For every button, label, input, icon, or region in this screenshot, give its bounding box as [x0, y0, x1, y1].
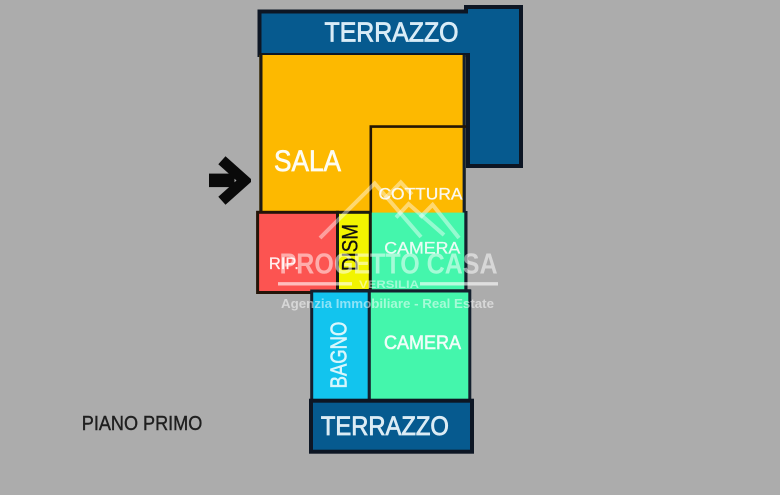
svg-text:VERSILIA: VERSILIA	[359, 279, 419, 291]
svg-text:TERRAZZO: TERRAZZO	[325, 16, 459, 47]
svg-text:TERRAZZO: TERRAZZO	[321, 411, 449, 441]
svg-text:CAMERA: CAMERA	[384, 333, 461, 354]
svg-text:PIANO PRIMO: PIANO PRIMO	[82, 413, 203, 435]
svg-text:SALA: SALA	[274, 145, 341, 178]
svg-text:PROGETTO CASA: PROGETTO CASA	[280, 249, 498, 281]
svg-text:Agenzia Immobiliare - Real Est: Agenzia Immobiliare - Real Estate	[281, 296, 494, 311]
svg-text:BAGNO: BAGNO	[326, 322, 352, 389]
